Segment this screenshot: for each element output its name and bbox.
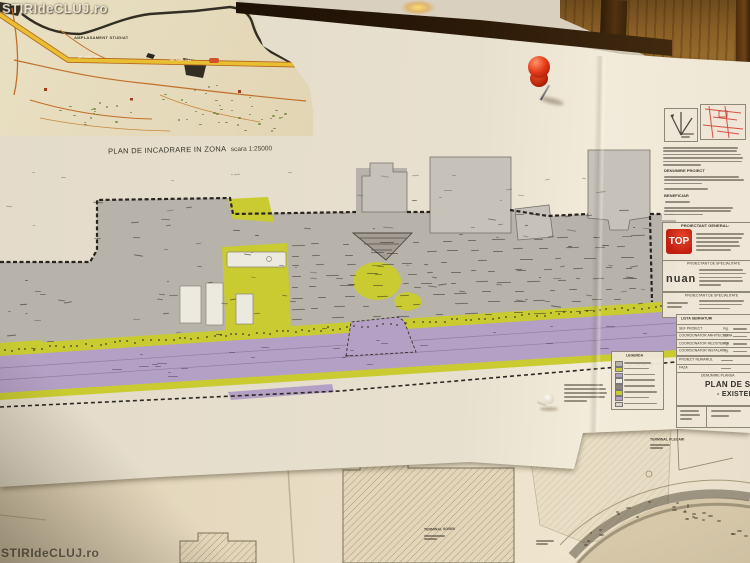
beneficiar-heading: BENEFICIAR — [664, 194, 689, 198]
main-plan-sheet-wrap: AMPLASAMENT STUDIAT Str. Traian Vuia Str… — [0, 0, 750, 563]
nuan-logo: nuan — [666, 269, 696, 287]
photo-of-pinned-plan: TERMINAL SOSIRI TERMINAL PLECARI — [0, 0, 750, 563]
white-building-long — [227, 252, 286, 267]
signatures-section: LISTA SEMNATURI SEF PROIECT ing.COORDONA… — [676, 314, 750, 356]
faza-label: FAZA — [679, 366, 688, 370]
trim-highlight — [400, 0, 436, 15]
detail-sketch-box — [700, 104, 746, 140]
proiect-numarul-label: PROIECT NUMARUL — [679, 358, 713, 362]
scale-date-section — [676, 406, 750, 428]
legend-box: LEGENDA — [611, 351, 664, 410]
title-block: DENUMIRE PROIECT BENEFICIAR PROIECTANT G… — [660, 96, 750, 432]
project-section: DENUMIRE PROIECT BENEFICIAR — [662, 168, 750, 220]
denumire-proiect-heading: DENUMIRE PROIECT — [664, 169, 705, 173]
main-plan-sheet: AMPLASAMENT STUDIAT Str. Traian Vuia Str… — [0, 0, 750, 563]
general-designer-section: PROIECTANT GENERAL: TOP — [662, 222, 750, 262]
white-pushpin — [536, 392, 566, 416]
site-plan-drawing — [0, 0, 750, 563]
proiectant-specialitate-heading-2: PROIECTANT DE SPECIALITATE — [685, 294, 738, 298]
red-detail-sketch — [701, 105, 745, 139]
specialty-designer-section-1: PROIECTANT DE SPECIALITATE nuan — [662, 260, 750, 292]
intro-paragraph — [662, 146, 750, 168]
proiectant-specialitate-heading-1: PROIECTANT DE SPECIALITATE — [687, 262, 740, 266]
sheet-name-section: DENUMIRE PLANSA PLAN DE SITUATIE - EXIST… — [676, 372, 750, 406]
sheet-title-line2: - EXISTENT — [717, 391, 750, 398]
proiectant-general-heading: PROIECTANT GENERAL: — [681, 224, 729, 228]
red-pushpin — [524, 56, 564, 106]
sheet-title-line1: PLAN DE SITUATIE — [705, 381, 750, 389]
grass-circle — [353, 262, 401, 300]
north-arrow-box — [664, 108, 698, 142]
denumire-plansa-label: DENUMIRE PLANSA — [701, 374, 734, 378]
top-logo: TOP — [666, 229, 692, 254]
lista-semnaturi-heading: LISTA SEMNATURI — [681, 317, 712, 321]
legend-rows — [612, 352, 663, 409]
